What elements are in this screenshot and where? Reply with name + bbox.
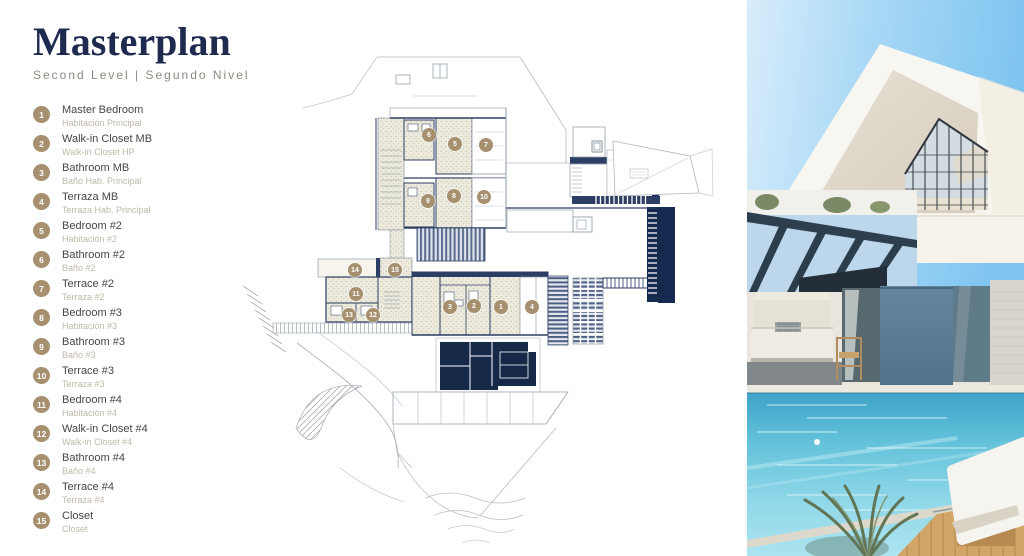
plan-room-marker: 8 xyxy=(447,189,461,203)
plan-room-marker: 5 xyxy=(448,137,462,151)
plan-room-marker: 10 xyxy=(477,190,491,204)
plan-room-marker: 2 xyxy=(467,299,481,313)
plan-room-marker: 1 xyxy=(494,300,508,314)
plan-room-marker: 6 xyxy=(422,128,436,142)
plan-room-marker: 15 xyxy=(388,263,402,277)
plan-room-marker: 4 xyxy=(525,300,539,314)
plan-room-marker: 7 xyxy=(479,138,493,152)
plan-room-marker: 14 xyxy=(348,263,362,277)
pergola xyxy=(747,190,917,295)
blue-wall xyxy=(880,286,953,385)
hero-photo xyxy=(747,0,1024,556)
outdoor-kitchen xyxy=(747,292,842,385)
pool-highlight xyxy=(814,439,820,445)
masterplan-page: Masterplan Second Level | Segundo Nivel … xyxy=(0,0,1024,556)
plan-room-marker: 13 xyxy=(342,308,356,322)
plan-room-marker: 3 xyxy=(443,300,457,314)
plan-room-marker: 11 xyxy=(349,287,363,301)
plan-room-marker: 9 xyxy=(421,194,435,208)
plan-room-marker: 12 xyxy=(366,308,380,322)
patio xyxy=(747,280,1024,388)
